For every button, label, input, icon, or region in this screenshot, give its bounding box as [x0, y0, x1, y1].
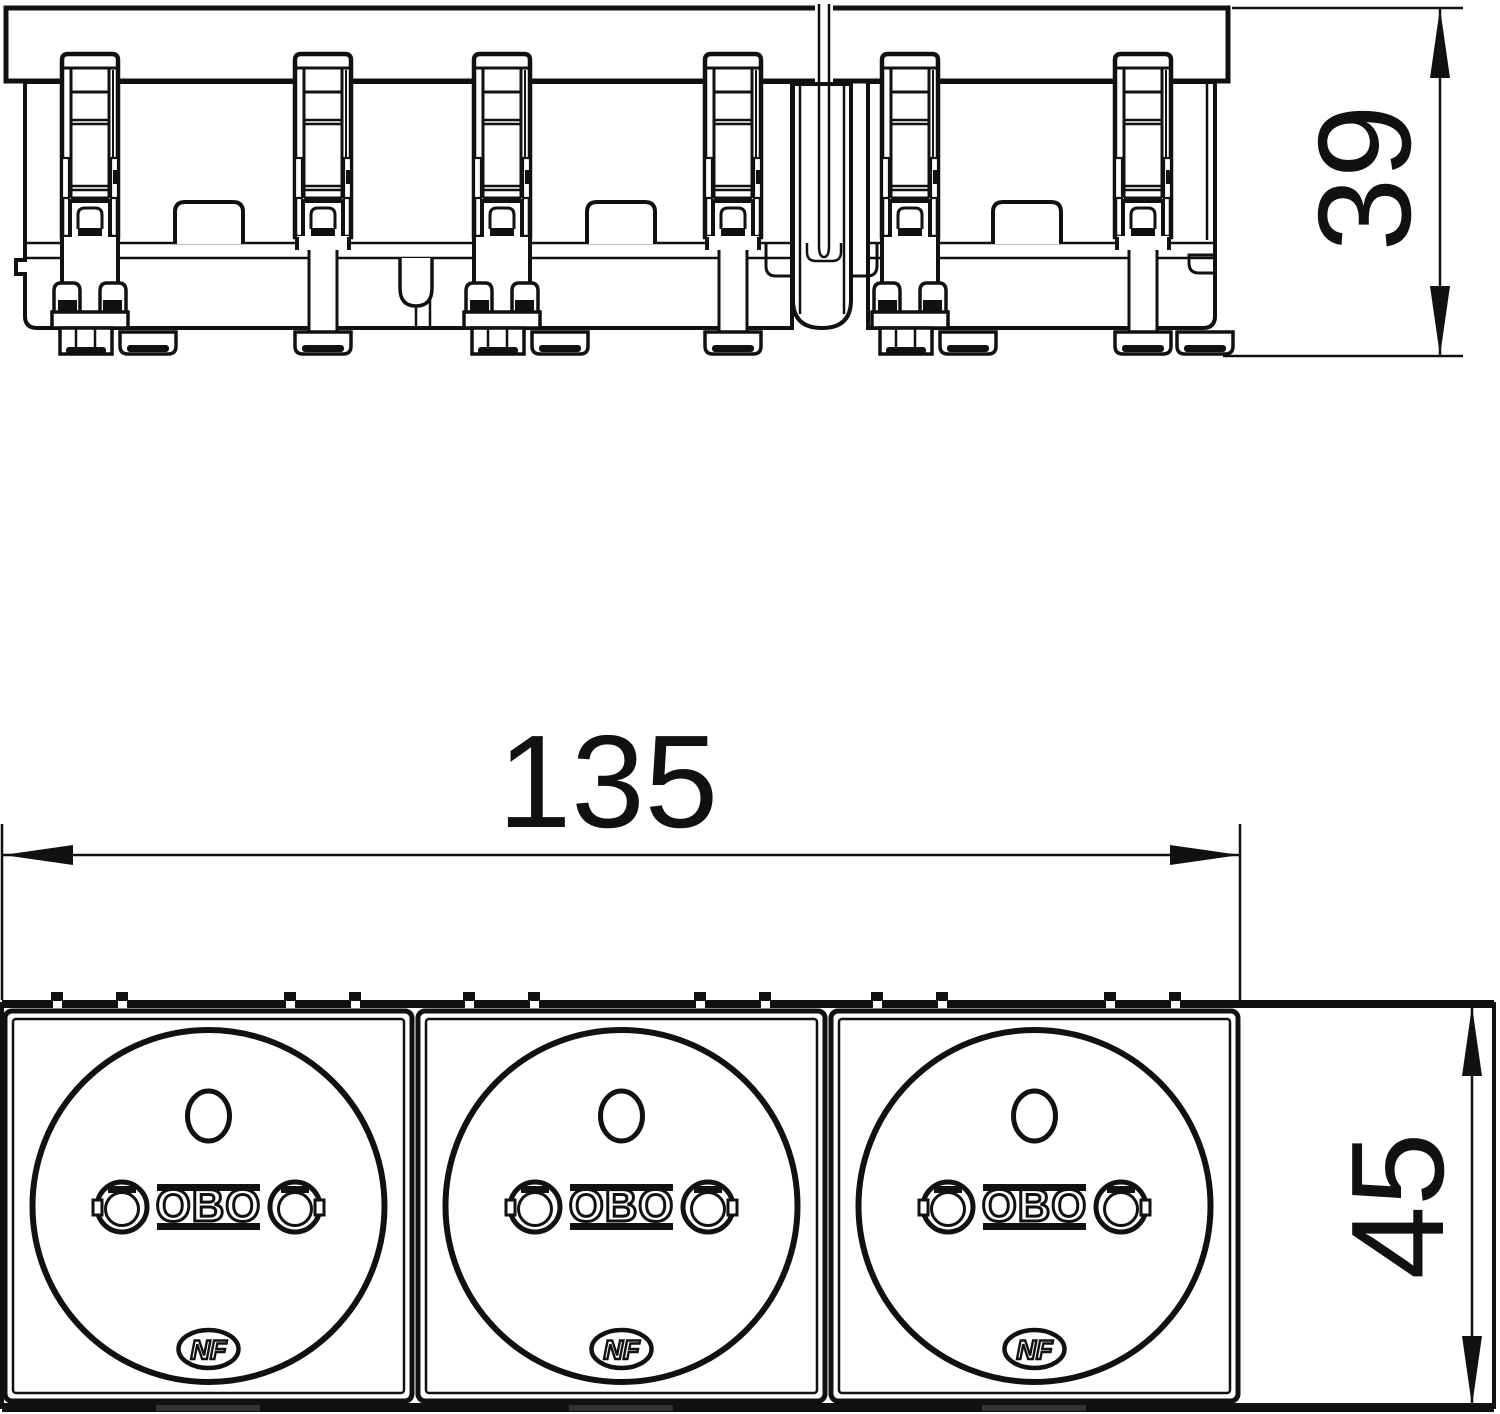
arrowhead-left	[3, 845, 73, 865]
top-view	[6, 3, 1233, 354]
dim-45-label: 45	[1324, 1133, 1471, 1280]
arrowhead-up	[1430, 8, 1450, 78]
dim-135-label: 135	[498, 708, 718, 855]
socket-module-technical-drawing: OBO NF	[0, 0, 1500, 1414]
junction-tab	[400, 258, 432, 306]
arrowhead-down	[1430, 286, 1450, 356]
dim-39-label: 39	[1291, 105, 1438, 252]
cover-plate	[6, 8, 1228, 81]
front-view	[2, 992, 1494, 1412]
dimension-135: 135	[2, 708, 1240, 1000]
technical-drawing-page: OBO NF	[0, 0, 1500, 1414]
front-top-edge	[2, 1000, 1494, 1008]
arrowhead-right	[1170, 845, 1240, 865]
dimension-39: 39	[1223, 8, 1463, 356]
